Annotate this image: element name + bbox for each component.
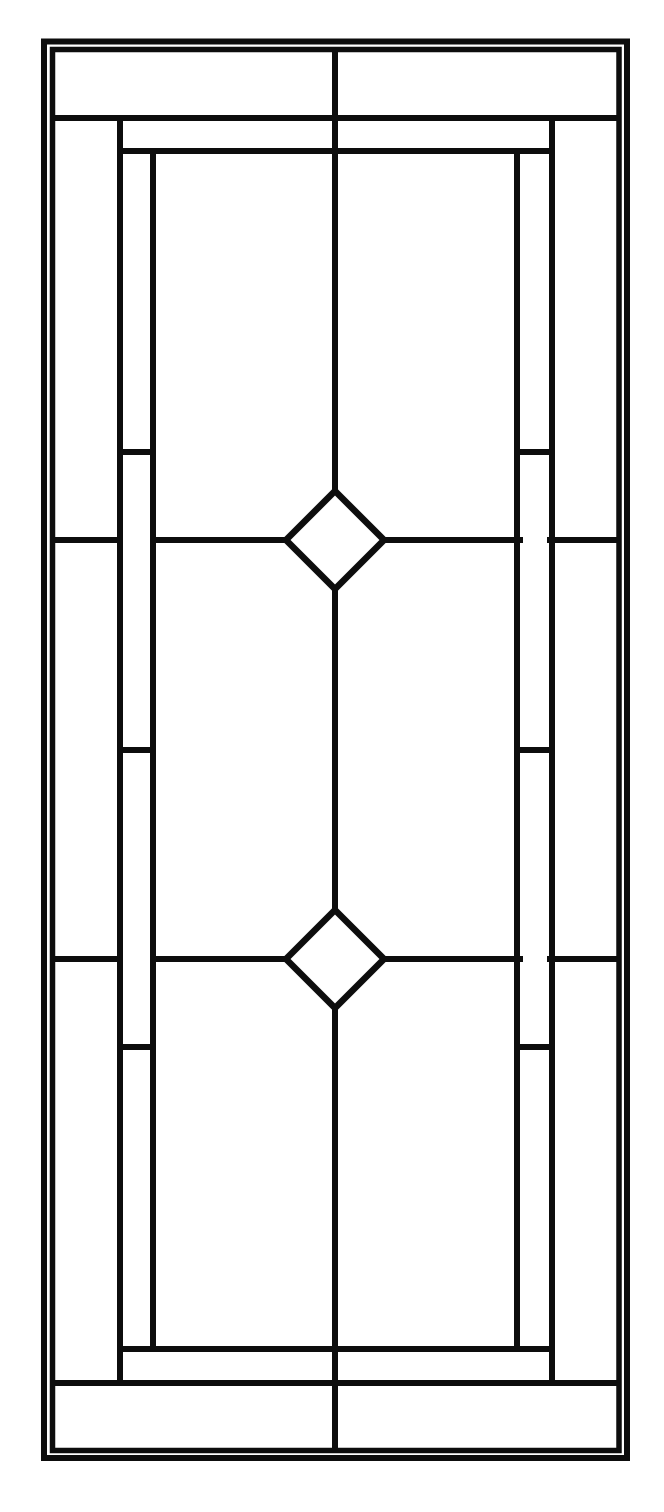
glass-panel-pattern [0,0,664,1512]
upper-diamond [286,491,384,589]
panel-drawing [0,0,664,1512]
lower-diamond [286,910,384,1008]
